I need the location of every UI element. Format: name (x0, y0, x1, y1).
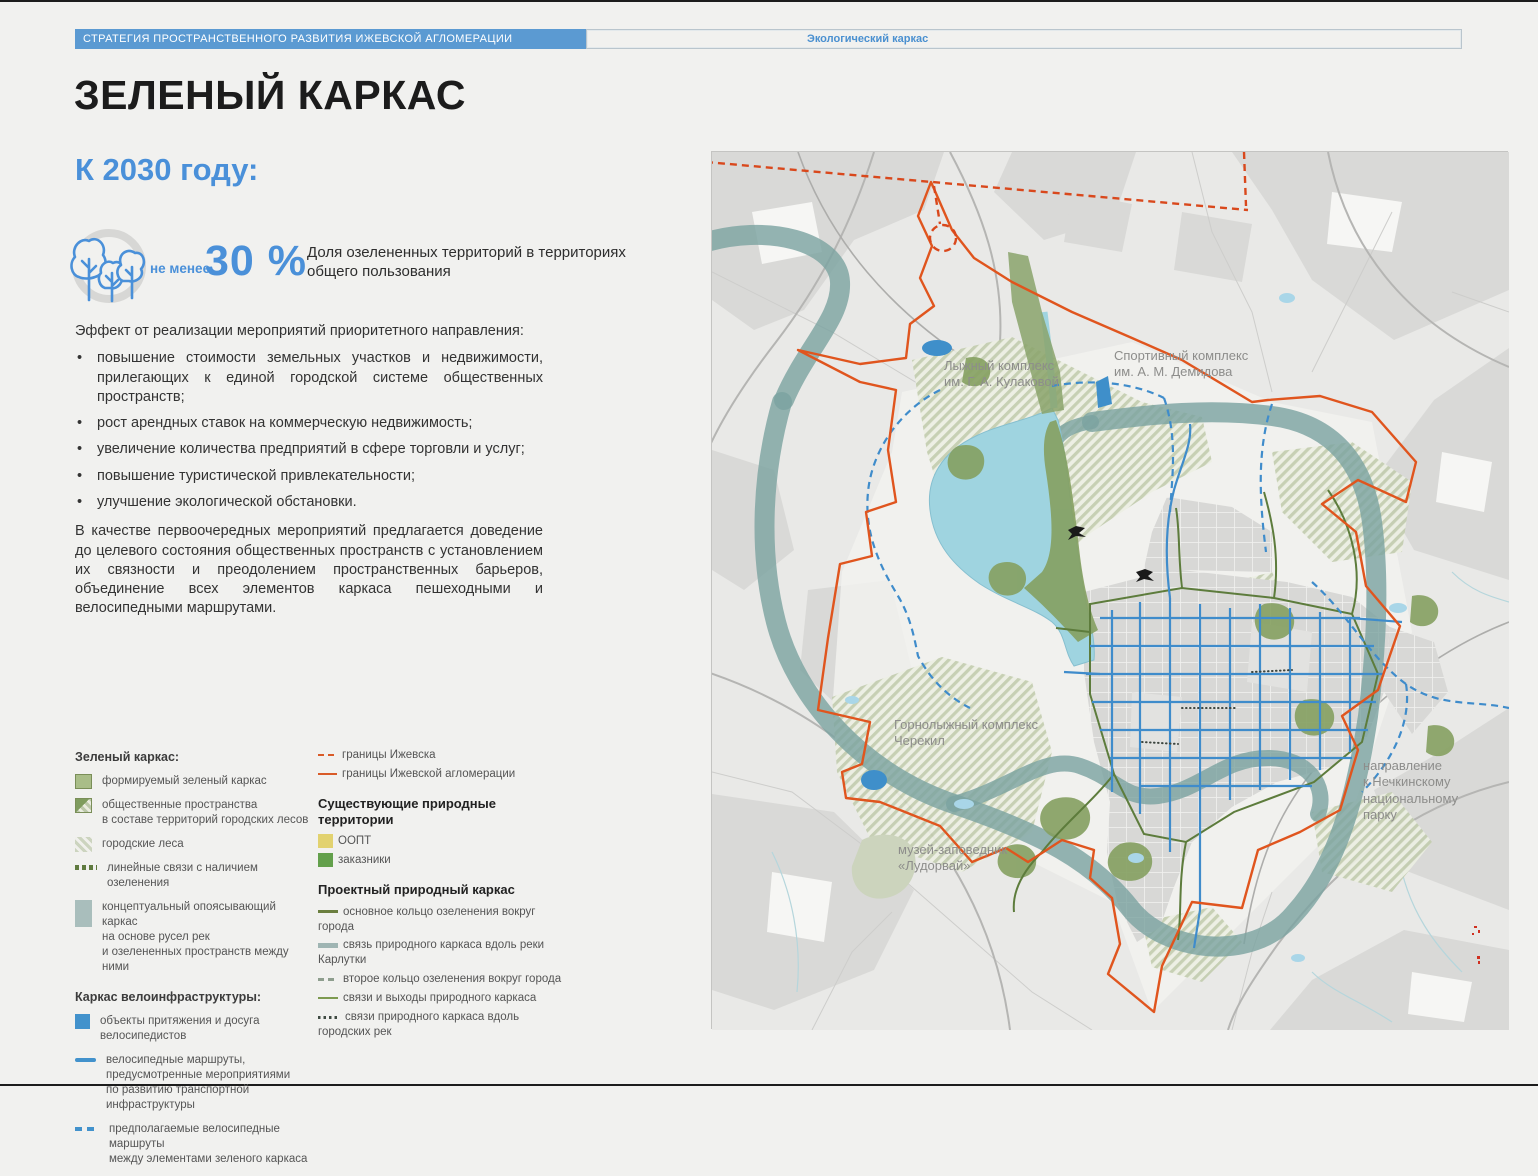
header-strategy-label: СТРАТЕГИЯ ПРОСТРАНСТВЕННОГО РАЗВИТИЯ ИЖЕ… (83, 33, 512, 45)
legend-green-heading: Зеленый каркас: (75, 750, 313, 764)
legend-item: границы Ижевска (318, 748, 570, 763)
effects-list: повышение стоимости земельных участков и… (75, 349, 543, 512)
main-ring-line-icon (318, 910, 338, 913)
effects-bullet: рост арендных ставок на коммерческую нед… (75, 414, 543, 433)
legend-project-heading: Проектный природный каркас (318, 882, 570, 898)
legend-item: городские леса (75, 837, 313, 852)
legend-item: линейные связи с наличием озеленения (75, 861, 313, 891)
karlutka-link-line-icon (318, 943, 338, 948)
legend-item: общественные пространства в составе терр… (75, 798, 313, 828)
page-title: ЗЕЛЕНЫЙ КАРКАС (74, 72, 466, 119)
effects-block: Эффект от реализации мероприятий приорит… (75, 322, 543, 619)
swatch-formed-green-icon (75, 774, 92, 789)
map-label-museum: музей-заповедник «Лудорвай» (898, 842, 1007, 875)
legend-map-keys: границы Ижевска границы Ижевской агломер… (318, 748, 570, 1044)
legend-item: концептуальный опоясывающий каркас на ос… (75, 900, 313, 975)
legend-item: формируемый зеленый каркас (75, 774, 313, 789)
effects-bullet: повышение стоимости земельных участков и… (75, 349, 543, 407)
stat-description: Доля озелененных территорий в территория… (307, 244, 641, 282)
effects-bullet: повышение туристической привлекательност… (75, 467, 543, 486)
legend-green-framework: Зеленый каркас: формируемый зеленый карк… (75, 750, 313, 1176)
legend-item: связи и выходы природного каркаса (318, 991, 570, 1006)
legend-item: ООПТ (318, 834, 570, 849)
agglomeration-boundary-line-icon (318, 773, 337, 776)
subtitle-2030: К 2030 году: (75, 152, 258, 188)
legend-item: предполагаемые велосипедные маршруты меж… (75, 1122, 313, 1167)
effects-intro: Эффект от реализации мероприятий приорит… (75, 322, 543, 341)
stat-value: 30 % (205, 237, 307, 286)
river-links-dots-icon (318, 1016, 340, 1019)
swatch-conceptual-ring-icon (75, 900, 92, 927)
legend-item: связь природного каркаса вдоль реки Карл… (318, 938, 570, 968)
map-label-sport-complex: Спортивный комплекс им. А. М. Демидова (1114, 348, 1248, 381)
trees-icon (62, 224, 152, 319)
legend-item: второе кольцо озеленения вокруг города (318, 972, 570, 987)
zakazniki-swatch-icon (318, 853, 333, 867)
legend-item: границы Ижевской агломерации (318, 767, 570, 782)
legend-item: велосипедные маршруты, предусмотренные м… (75, 1053, 313, 1113)
oopt-swatch-icon (318, 834, 333, 848)
legend-item: связи природного каркаса вдоль городских… (318, 1010, 570, 1040)
swatch-linear-links-icon (75, 865, 97, 870)
swatch-public-spaces-icon (75, 798, 92, 813)
legend-natural-heading: Существующие природные территории (318, 796, 528, 829)
swatch-bike-proposed-icon (75, 1127, 99, 1131)
header-strategy-bar: СТРАТЕГИЯ ПРОСТРАНСТВЕННОГО РАЗВИТИЯ ИЖЕ… (75, 29, 586, 49)
swatch-city-forests-icon (75, 837, 92, 852)
effects-bullet: улучшение экологической обстановки. (75, 493, 543, 512)
swatch-bike-objects-icon (75, 1014, 90, 1029)
header-section-label: Экологический каркас (587, 33, 928, 45)
city-boundary-dash-icon (318, 754, 337, 757)
legend-item: заказники (318, 853, 570, 868)
map-panel: Лыжный комплекс им. Г. А. Кулаковой Спор… (711, 151, 1508, 1029)
stat-prefix: не менее (150, 261, 210, 276)
effects-bullet: увеличение количества предприятий в сфер… (75, 440, 543, 459)
swatch-bike-routes-icon (75, 1058, 96, 1062)
map-label-alpine-complex: Горнолыжный комплекс Черекил (894, 717, 1038, 750)
legend-item: основное кольцо озеленения вокруг города (318, 905, 570, 935)
map-svg (712, 152, 1509, 1030)
map-label-ski-complex: Лыжный комплекс им. Г. А. Кулаковой (944, 358, 1059, 391)
second-ring-dash-icon (318, 978, 338, 981)
header-section-box: Экологический каркас (586, 29, 1462, 49)
legend-bike-heading: Каркас велоинфраструктуры: (75, 990, 313, 1004)
slide-top-border (0, 0, 1538, 2)
framework-exits-line-icon (318, 997, 338, 999)
effects-conclusion: В качестве первоочередных мероприятий пр… (75, 522, 543, 618)
legend-item: объекты притяжения и досуга велосипедист… (75, 1014, 313, 1044)
map-label-direction: направление к Нечкинскому национальному … (1363, 758, 1458, 823)
